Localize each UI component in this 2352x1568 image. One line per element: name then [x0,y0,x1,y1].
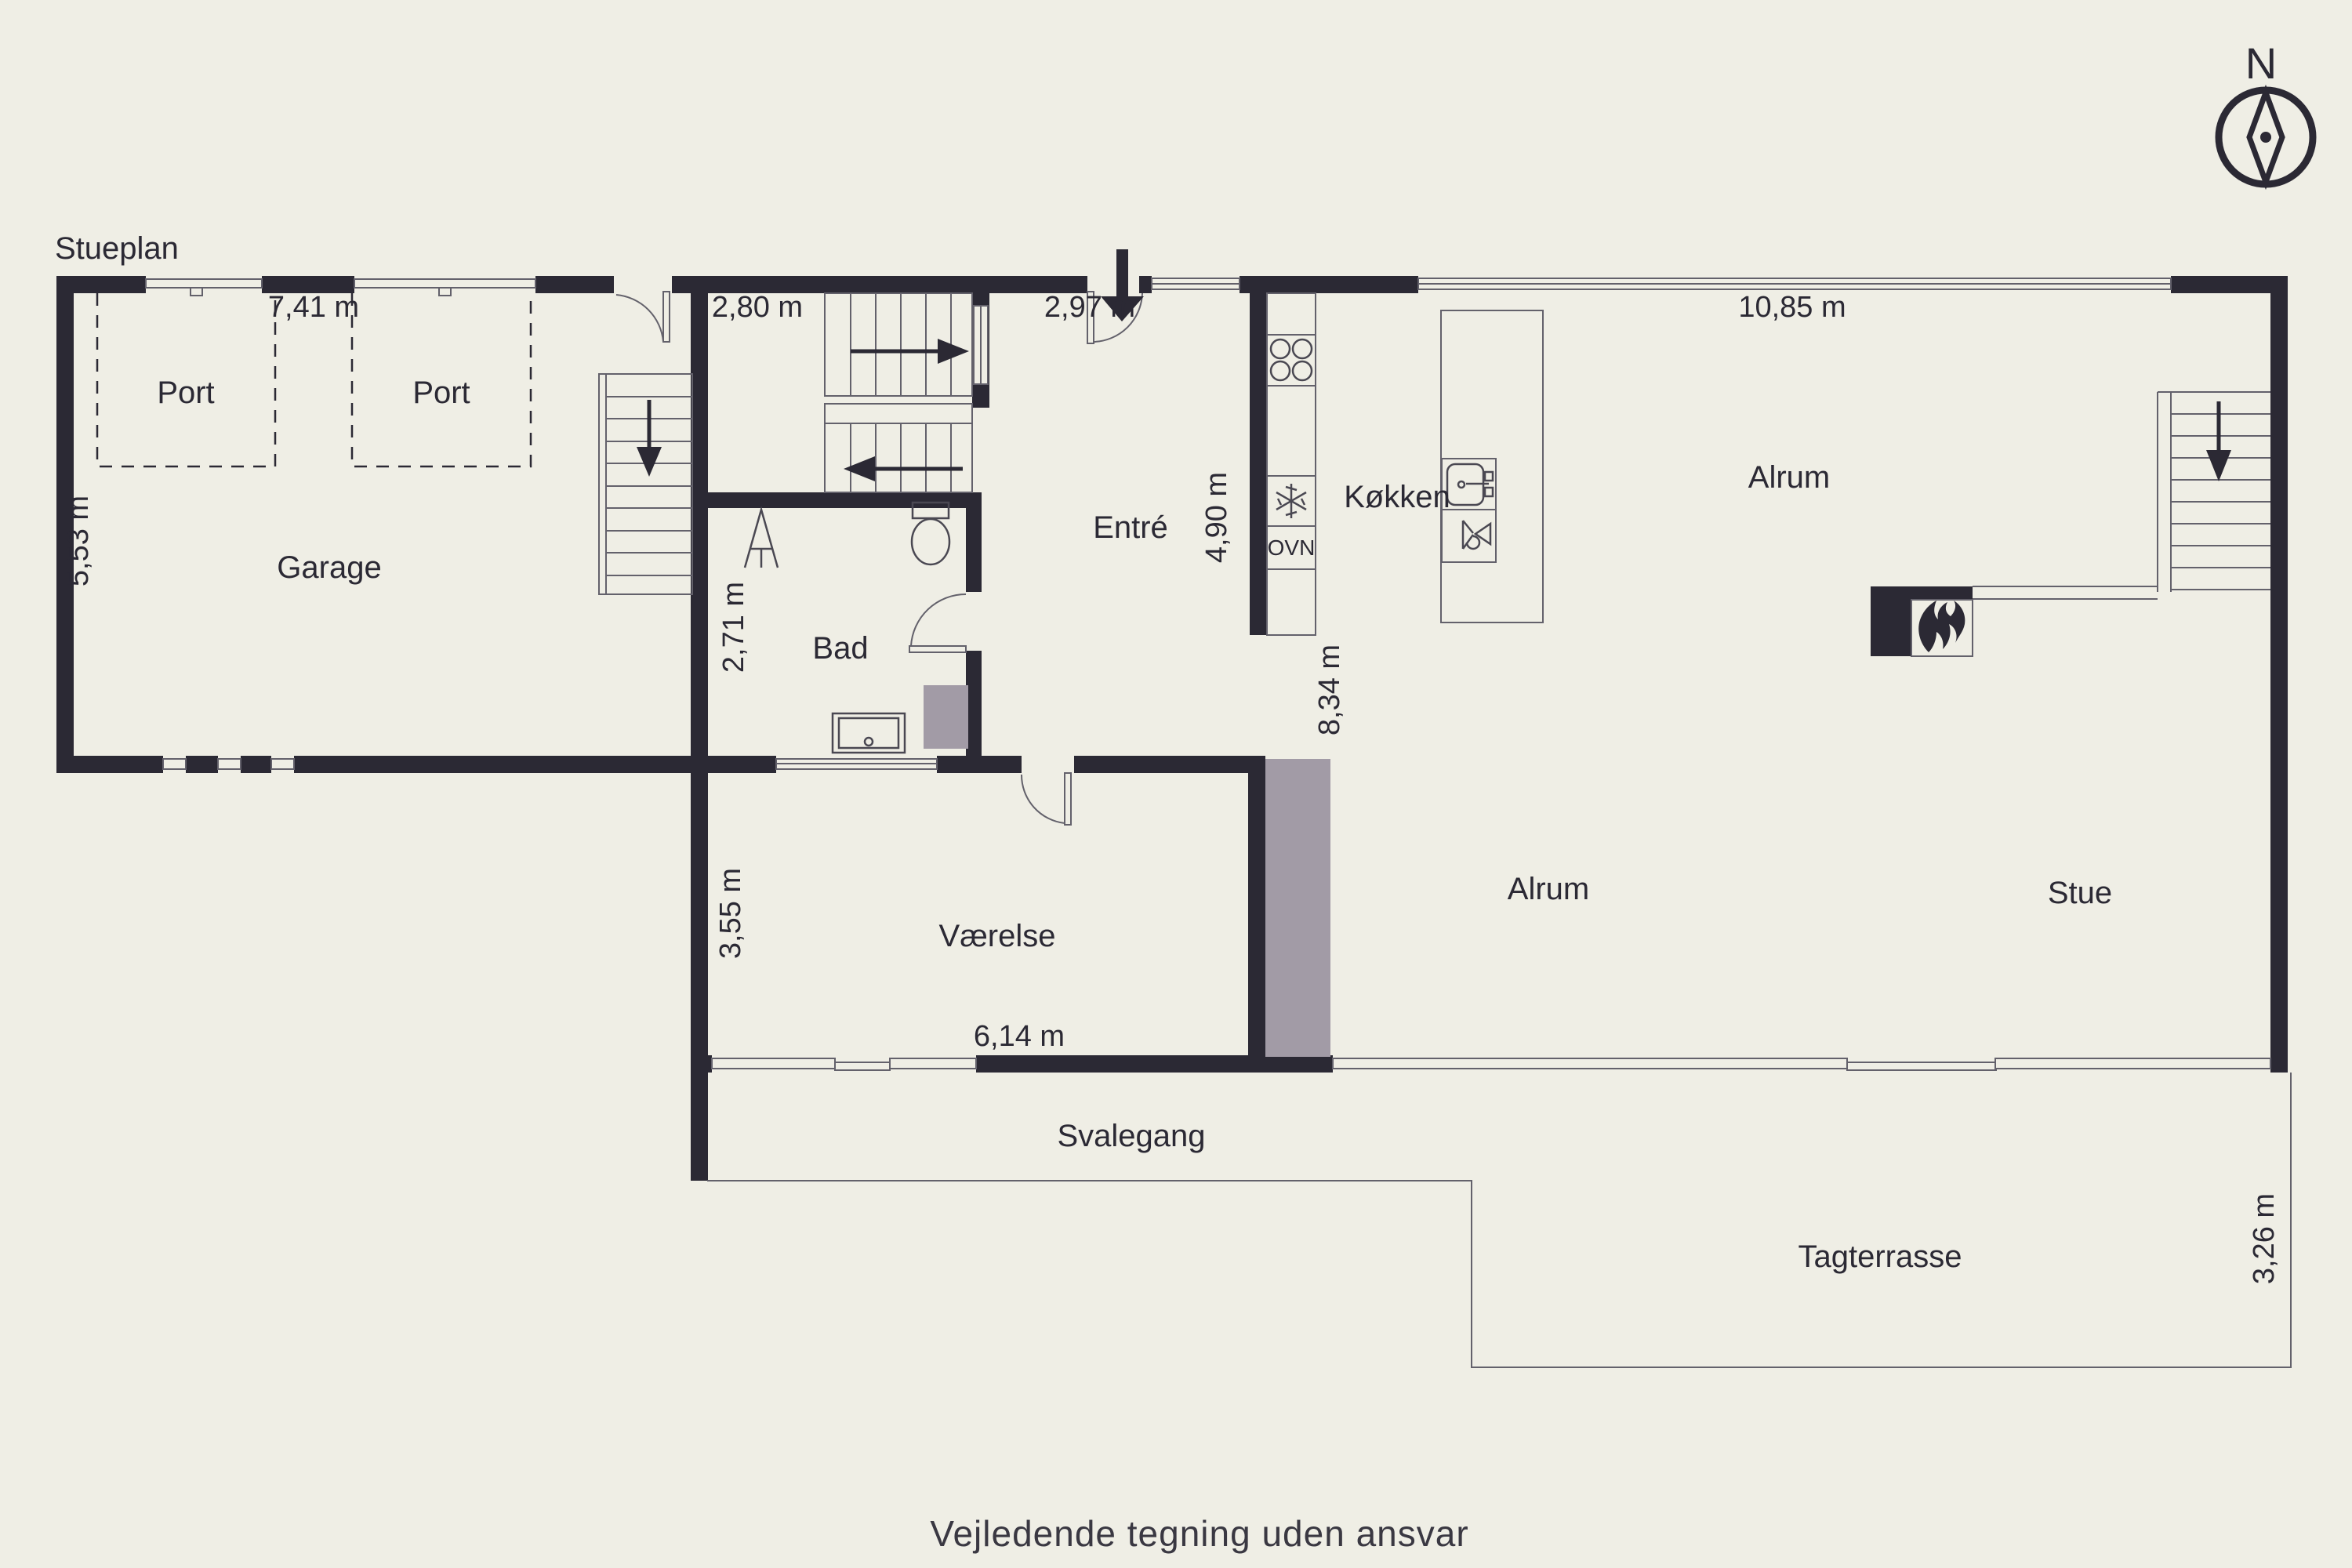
bathroom-door [909,594,966,652]
dim-alrum-width: 10,85 m [1738,291,1846,324]
dim-terrace-depth: 3,26 m [2248,1193,2281,1284]
floorplan-drawing: N Stueplan Port Port Garage Bad Entré Kø… [0,0,2352,1568]
room-label-svalegang: Svalegang [1057,1119,1205,1153]
stair-sidelight [974,306,988,384]
terrace-outline [707,1073,2291,1367]
disclaimer-text: Vejledende tegning uden ansvar [930,1513,1468,1554]
interior-walls [692,293,1267,1073]
alrum-stairs [1973,392,2270,599]
garage-window-2 [218,759,241,769]
alrum-north-window [1418,278,2171,289]
entry-window [1152,278,1240,289]
stairs-exit-arrow [844,456,963,481]
garage-door-2 [354,279,535,296]
vaerelse-windows [712,1058,976,1070]
room-label-tagterrasse: Tagterrasse [1798,1240,1962,1274]
sink-icon [833,713,905,753]
vaerelse-door [1022,773,1071,825]
freezer-snowflake-icon [1276,484,1306,518]
garage-side-door [616,292,670,342]
room-label-alrum-upper: Alrum [1748,460,1830,495]
chimney-shaft [1265,759,1330,1057]
dim-garage-width: 7,41 m [268,291,359,324]
dim-vaerelse-width: 6,14 m [974,1020,1065,1053]
compass-north-label: N [2245,38,2277,88]
dim-kitchen-depth: 4,90 m [1200,472,1233,563]
stairs-down-arrow [637,400,662,477]
island-sink-icon [1447,464,1493,505]
room-label-entre: Entré [1093,510,1168,545]
room-label-vaerelse: Værelse [939,919,1056,953]
room-label-port1: Port [157,376,214,410]
garage-door-1 [146,279,262,296]
bathroom-window [776,759,937,769]
oven-label: OVN [1268,535,1316,560]
floorplan-page: N Stueplan Port Port Garage Bad Entré Kø… [0,0,2352,1568]
hall-stairs [825,293,972,492]
bathroom-fixtures [745,503,949,753]
dishwasher-glass-icon [1463,521,1490,549]
garage-window-3 [271,759,294,769]
garage-window-1 [163,759,186,769]
dim-alrum-depth: 8,34 m [1313,644,1346,735]
room-label-garage: Garage [277,550,381,585]
cooktop-icon [1271,339,1312,380]
kitchen-island [1441,310,1543,622]
dim-garage-depth: 5,53 m [62,495,95,586]
room-label-kokken: Køkken [1344,480,1450,514]
dim-vaerelse-depth: 3,55 m [714,868,747,959]
toilet-icon [912,503,949,564]
stue-windows [1333,1058,2270,1070]
bathroom-cabinet [924,685,968,749]
compass-center-dot [2260,132,2271,143]
room-label-alrum-lower: Alrum [1508,872,1589,906]
fireplace [1871,586,1973,656]
room-label-stue: Stue [2048,876,2112,910]
compass: N [2219,38,2313,184]
exterior-walls [56,276,2288,1181]
garage-exterior-stairs [599,374,692,594]
dim-entre-width: 2,97 m [1044,291,1135,324]
room-label-port2: Port [412,376,470,410]
page-title: Stueplan [55,231,179,266]
shower-icon [745,510,778,568]
room-label-bad: Bad [812,631,868,666]
dim-bad-depth: 2,71 m [717,582,750,673]
dim-hall-width: 2,80 m [712,291,803,324]
kitchen-counter [1267,293,1316,635]
